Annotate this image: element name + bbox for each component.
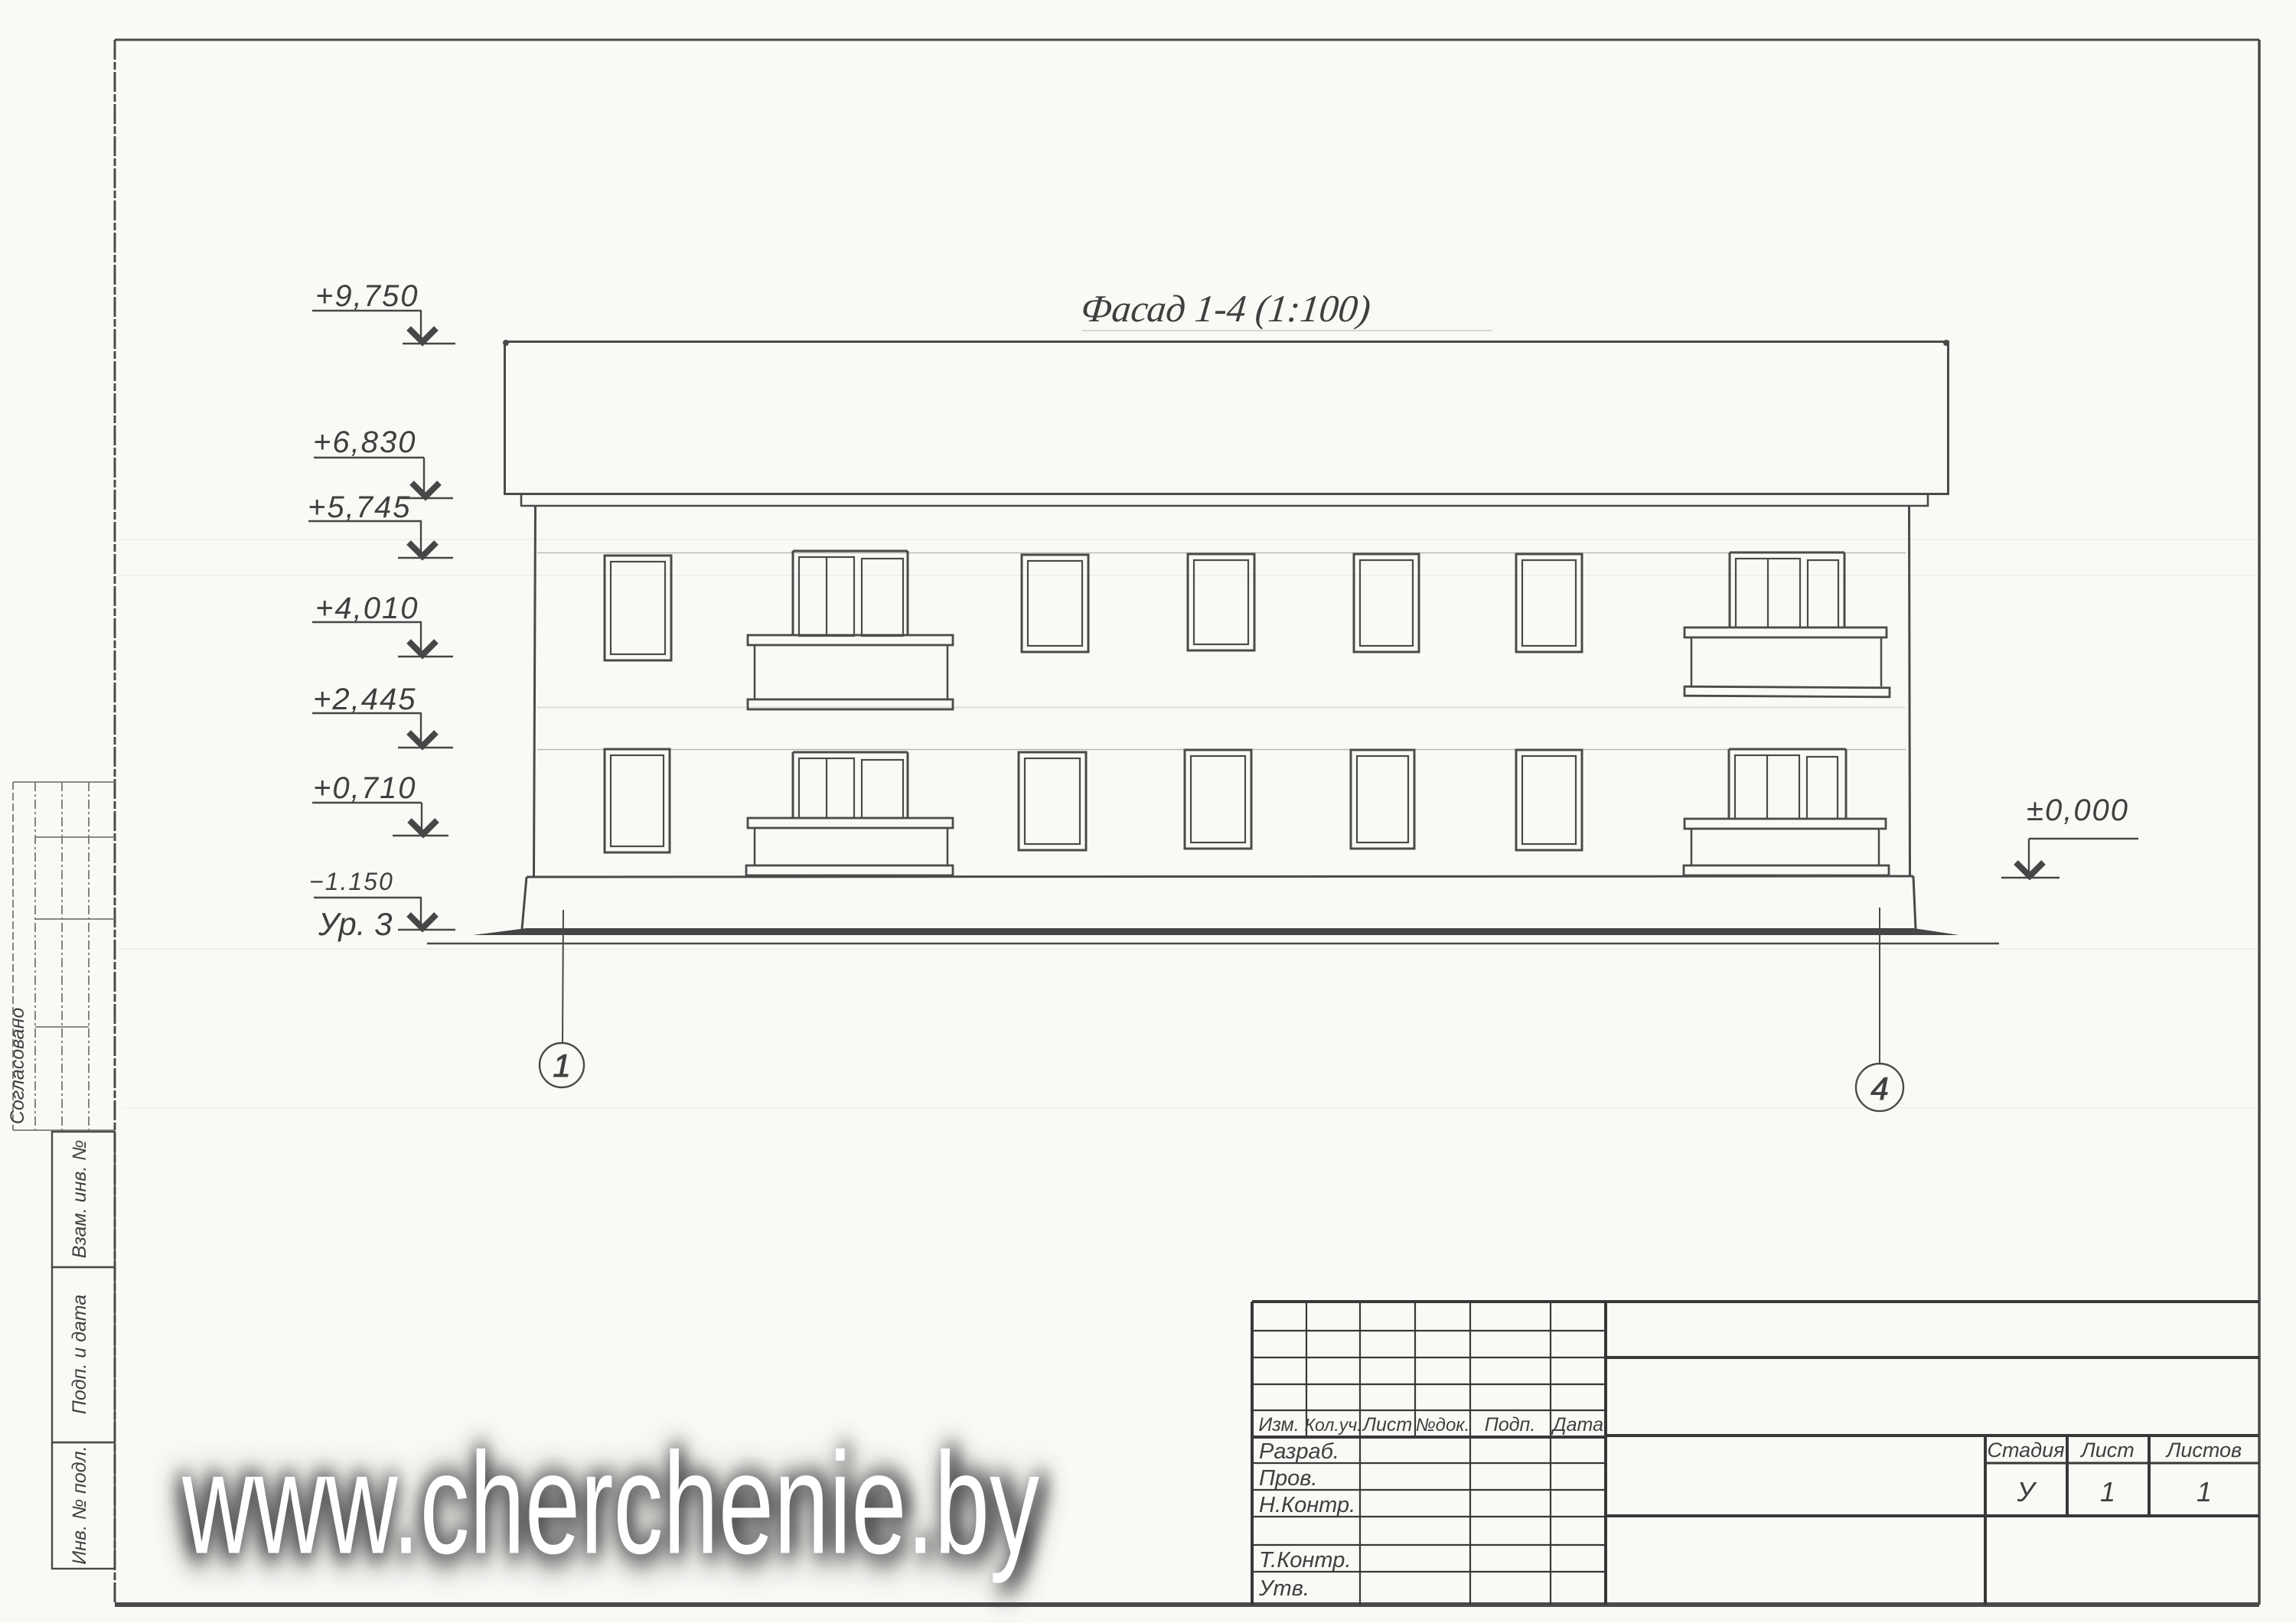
svg-text:Подп.: Подп.: [1485, 1414, 1536, 1436]
svg-text:Листов: Листов: [2165, 1439, 2242, 1462]
svg-text:±0,000: ±0,000: [2027, 794, 2129, 827]
svg-text:+2,445: +2,445: [313, 683, 416, 716]
svg-text:+9,750: +9,750: [315, 279, 419, 313]
svg-text:№док.: №док.: [1416, 1415, 1470, 1436]
svg-text:Т.Контр.: Т.Контр.: [1259, 1548, 1351, 1572]
svg-text:1: 1: [553, 1048, 570, 1084]
svg-text:Пров.: Пров.: [1259, 1466, 1317, 1491]
svg-text:Согласовано: Согласовано: [7, 1008, 28, 1125]
svg-text:4: 4: [1870, 1071, 1888, 1106]
svg-text:Лист: Лист: [2079, 1439, 2135, 1462]
svg-text:Стадия: Стадия: [1987, 1439, 2064, 1462]
svg-text:+0,710: +0,710: [313, 771, 416, 805]
svg-text:Н.Контр.: Н.Контр.: [1259, 1493, 1355, 1517]
svg-text:Ур. 3: Ур. 3: [318, 906, 392, 942]
svg-text:1: 1: [2100, 1476, 2115, 1507]
svg-text:Утв.: Утв.: [1258, 1576, 1309, 1601]
svg-text:У: У: [2016, 1476, 2037, 1507]
svg-text:+6,830: +6,830: [313, 425, 416, 459]
svg-text:Разраб.: Разраб.: [1259, 1439, 1339, 1464]
svg-text:−1.150: −1.150: [309, 868, 394, 895]
svg-text:Инв. № подл.: Инв. № подл.: [69, 1445, 90, 1564]
svg-text:Взам. инв. №: Взам. инв. №: [69, 1140, 90, 1259]
svg-text:Кол.уч.: Кол.уч.: [1305, 1415, 1362, 1435]
svg-text:+4,010: +4,010: [315, 592, 419, 625]
svg-text:Дата: Дата: [1551, 1414, 1603, 1436]
svg-text:Фасад 1-4 (1:100): Фасад 1-4 (1:100): [1079, 287, 1373, 330]
svg-text:Подп. и дата: Подп. и дата: [69, 1295, 90, 1415]
svg-text:Лист: Лист: [1362, 1414, 1412, 1436]
svg-text:Изм.: Изм.: [1258, 1414, 1299, 1436]
svg-text:+5,745: +5,745: [308, 490, 411, 524]
svg-text:1: 1: [2197, 1476, 2212, 1507]
